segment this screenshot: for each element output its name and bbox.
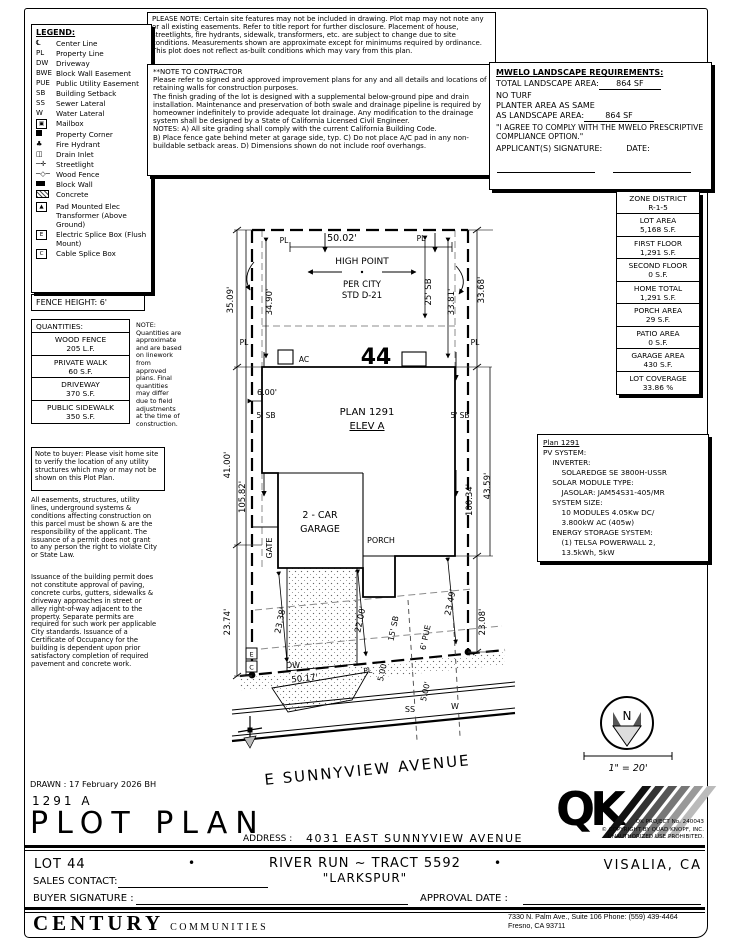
separator-bullet: • [494, 856, 501, 870]
pv-body: PV SYSTEM: INVERTER: SOLAREDGE SE 3800H-… [543, 448, 703, 558]
dim-label: 43.59' [483, 473, 493, 500]
pv-system-box: Plan 1291 PV SYSTEM: INVERTER: SOLAREDGE… [537, 434, 709, 562]
dim-label: 6.00' [257, 388, 277, 397]
sewer-symbol: SS [36, 99, 56, 108]
dim-label: 105.82' [238, 481, 248, 513]
legend-item: SSSewer Lateral [36, 99, 149, 108]
table-row: PORCH AREA29 S.F. [616, 303, 700, 327]
contractor-note-title: **NOTE TO CONTRACTOR [153, 68, 489, 76]
legend-item: ▣Mailbox [36, 119, 149, 129]
north-compass: N 1" = 20' [580, 688, 690, 780]
mwelo-planter-value: 864 SF [584, 111, 654, 122]
pue-label: 6' PUE [418, 624, 432, 651]
qk-copyright: © COPYRIGHT BY QUAD KNOPF, INC. [556, 827, 704, 835]
wood-fence-icon: ─◇─ [36, 170, 56, 179]
buyer-signature-line [136, 904, 408, 905]
divider-rule [25, 845, 705, 848]
house-footprint [253, 350, 455, 597]
dim-label: 50.02' [327, 233, 357, 244]
elev-label: ELEV A [349, 421, 384, 432]
dim-label: 33.81' [447, 289, 457, 316]
please-note-text: PLEASE NOTE: Certain site features may n… [152, 15, 484, 55]
setback-label: 15' SB [387, 615, 401, 642]
buyer-note-box: Note to buyer: Please visit home site to… [31, 447, 165, 491]
ac-label: AC [299, 355, 309, 364]
property-corner-marker [249, 672, 256, 679]
dim-label: 5.00' [419, 681, 432, 702]
setback-symbol: SB [36, 89, 56, 98]
mwelo-planter: AS LANDSCAPE AREA:864 SF [496, 111, 705, 122]
driveway-concrete [287, 568, 357, 671]
legend-item: Concrete [36, 190, 149, 201]
high-point-marker [361, 271, 363, 273]
quantities-table: QUANTITIES: WOOD FENCE205 L.F. PRIVATE W… [31, 320, 130, 424]
sewer-label: SS [405, 705, 415, 714]
legend-item: PLProperty Line [36, 49, 149, 58]
mwelo-agreement: "I AGREE TO COMPLY WITH THE MWELO PRESCR… [496, 123, 705, 141]
dim-label: 33.68' [477, 277, 487, 304]
mwelo-title: MWELO LANDSCAPE REQUIREMENTS: [496, 67, 705, 78]
approval-date-label: APPROVAL DATE : [420, 893, 508, 904]
site-plan-drawing: PL PL 50.02' HIGH POINT PER CITY STD D-2… [150, 185, 530, 815]
qk-credits: QK PROJECT No. 240043 © COPYRIGHT BY QUA… [556, 819, 704, 842]
centerline-symbol: ℄ [36, 39, 56, 48]
dim-label: 23.49' [443, 589, 458, 617]
streetlight-symbol [238, 716, 262, 748]
setback-label: 5' SB [256, 411, 275, 420]
mwelo-planter-line1: PLANTER AREA AS SAME [496, 101, 705, 111]
legend-item: ─◇─Wood Fence [36, 170, 149, 179]
pl-label: PL [471, 338, 481, 347]
legend-item: PUEPublic Utility Easement [36, 79, 149, 88]
water-label: W [451, 702, 459, 711]
legend-item: ▲Pad Mounted Elec Transformer (Above Gro… [36, 202, 149, 229]
legend-item: EElectric Splice Box (Flush Mount) [36, 230, 149, 248]
builder-name: CENTURY [33, 911, 164, 936]
scale-text: 1" = 20' [608, 763, 647, 774]
legend-item: WWater Lateral [36, 109, 149, 118]
property-corner-icon [36, 130, 56, 139]
address-value: 4031 EAST SUNNYVIEW AVENUE [306, 832, 523, 845]
legend-title: LEGEND: [36, 28, 149, 37]
block-wall-icon [36, 180, 56, 189]
plan-label: PLAN 1291 [340, 407, 395, 418]
quantity-row: PUBLIC SIDEWALK350 S.F. [31, 400, 130, 424]
dim-label: 41.00' [223, 452, 233, 479]
property-line-symbol: PL [36, 49, 56, 58]
mailbox-icon: ▣ [36, 119, 56, 129]
water-symbol: W [36, 109, 56, 118]
garage-label: GARAGE [300, 524, 340, 535]
legend-item: DWDriveway [36, 59, 149, 68]
legend-item: Property Corner [36, 130, 149, 139]
mwelo-no-turf: NO TURF [496, 90, 705, 101]
table-row: GARAGE AREA430 S.F. [616, 348, 700, 372]
tract-label: RIVER RUN ~ TRACT 5592 [240, 856, 490, 871]
address-label: ADDRESS : [243, 834, 292, 844]
office-address-line2: Fresno, CA 93711 [508, 922, 678, 931]
legend-item: CCable Splice Box [36, 249, 149, 259]
mwelo-date-line [613, 172, 691, 173]
buyer-signature-label: BUYER SIGNATURE : [33, 893, 134, 904]
zone-area-table: ZONE DISTRICTR-1-5 LOT AREA5,168 S.F. FI… [616, 192, 700, 395]
mwelo-box: MWELO LANDSCAPE REQUIREMENTS: TOTAL LAND… [489, 62, 712, 190]
legend-item: Block Wall [36, 180, 149, 189]
table-row: LOT AREA5,168 S.F. [616, 213, 700, 237]
approval-date-line [523, 904, 701, 905]
setback-label: 5' SB [450, 411, 469, 420]
street-name: E SUNNYVIEW AVENUE [264, 751, 472, 789]
mwelo-total-value: 864 SF [599, 78, 661, 90]
divider-rule [25, 907, 705, 910]
dim-label: 34.90' [265, 289, 275, 316]
quantity-row: DRIVEWAY370 S.F. [31, 377, 130, 401]
legal-paragraph-1: All easements, structures, utility lines… [31, 497, 159, 560]
legend-item: BWEBlock Wall Easement [36, 69, 149, 78]
qk-project-number: QK PROJECT No. 240043 [556, 819, 704, 827]
please-note: PLEASE NOTE: Certain site features may n… [147, 12, 496, 68]
cable-splice-icon: C [36, 249, 56, 259]
legend-item: SBBuilding Setback [36, 89, 149, 98]
concrete-icon [36, 190, 56, 201]
rear-pad [402, 352, 426, 366]
legend-item: ◫Drain Inlet [36, 150, 149, 159]
mwelo-signature-line [497, 172, 595, 173]
quantity-row: WOOD FENCE205 L.F. [31, 332, 130, 356]
community-label: "LARKSPUR" [240, 871, 490, 885]
compass-n-label: N [623, 709, 632, 723]
plot-plan-sheet: PLEASE NOTE: Certain site features may n… [0, 0, 732, 946]
legal-paragraph-2: Issuance of the building permit does not… [31, 574, 159, 669]
mwelo-total: TOTAL LANDSCAPE AREA:864 SF [496, 78, 705, 90]
high-point-label: HIGH POINT [335, 257, 389, 267]
contractor-note-box: **NOTE TO CONTRACTOR Please refer to sig… [147, 64, 495, 176]
block-wall-easement-symbol: BWE [36, 69, 56, 78]
fence-height-box: FENCE HEIGHT: 6' [31, 294, 145, 311]
builder-office: 7330 N. Palm Ave., Suite 106 Phone: (559… [508, 913, 678, 930]
dim-label: 35.09' [226, 287, 236, 314]
divider-rule [25, 850, 705, 851]
legend-item: ♣Fire Hydrant [36, 140, 149, 149]
porch-label: PORCH [367, 536, 395, 545]
cable-splice-label: C [249, 664, 254, 672]
high-point-label: STD D-21 [342, 291, 382, 301]
table-row: HOME TOTAL1,291 S.F. [616, 281, 700, 305]
separator-bullet: • [188, 856, 195, 870]
transformer-icon: ▲ [36, 202, 56, 212]
drawn-line: DRAWN : 17 February 2026 BH [30, 779, 156, 789]
legend-item: ─✛Streetlight [36, 160, 149, 169]
dim-label: 23.08' [478, 609, 488, 636]
table-row: FIRST FLOOR1,291 S.F. [616, 236, 700, 260]
sales-contact-line [118, 887, 268, 888]
lot-label: LOT 44 [34, 857, 86, 872]
electric-splice-icon: E [36, 230, 56, 240]
contractor-note-body: Please refer to signed and approved impr… [153, 76, 489, 150]
pl-label: PL [240, 338, 250, 347]
ac-pad [278, 350, 293, 364]
builder-logo: CENTURY COMMUNITIES [33, 911, 268, 936]
dim-label: 23.38' [273, 607, 288, 635]
builder-sub: COMMUNITIES [170, 922, 268, 933]
dim-label: 100.34' [465, 484, 475, 516]
quantity-row: PRIVATE WALK60 S.F. [31, 355, 130, 379]
dim-label: 5.00' [376, 661, 389, 682]
dim-label: 23.74' [223, 609, 233, 636]
garage-label: 2 - CAR [302, 510, 338, 521]
driveway-label: DW [286, 661, 300, 670]
pue-symbol: PUE [36, 79, 56, 88]
pl-label: PL [417, 234, 427, 243]
sales-contact-label: SALES CONTACT: [33, 876, 117, 887]
high-point-label: PER CITY [343, 280, 382, 290]
pv-title: Plan 1291 [543, 438, 703, 448]
gate-label: GATE [265, 538, 274, 559]
table-row: PATIO AREA0 S.F. [616, 326, 700, 350]
pl-label: PL [280, 236, 290, 245]
fire-hydrant-icon: ♣ [36, 140, 56, 149]
city-label: VISALIA, CA [588, 858, 702, 873]
streetlight-icon: ─✛ [36, 160, 56, 169]
setback-label: 25' SB [424, 278, 434, 305]
mwelo-signature-row: APPLICANT(S) SIGNATURE:DATE: [496, 143, 705, 154]
lot-number: 44 [361, 345, 392, 370]
table-row: LOT COVERAGE33.86 % [616, 371, 700, 395]
table-row: SECOND FLOOR0 S.F. [616, 258, 700, 282]
page-title: PLOT PLAN [30, 806, 266, 841]
legend-box: LEGEND: ℄Center Line PLProperty Line DWD… [31, 24, 152, 293]
drain-inlet-icon: ◫ [36, 150, 56, 159]
driveway-symbol: DW [36, 59, 56, 68]
table-row: ZONE DISTRICTR-1-5 [616, 191, 700, 215]
qk-prohibited: UNAUTHORIZED USE PROHIBITED. [556, 834, 704, 842]
electric-splice-label: E [249, 651, 253, 659]
legend-item: ℄Center Line [36, 39, 149, 48]
